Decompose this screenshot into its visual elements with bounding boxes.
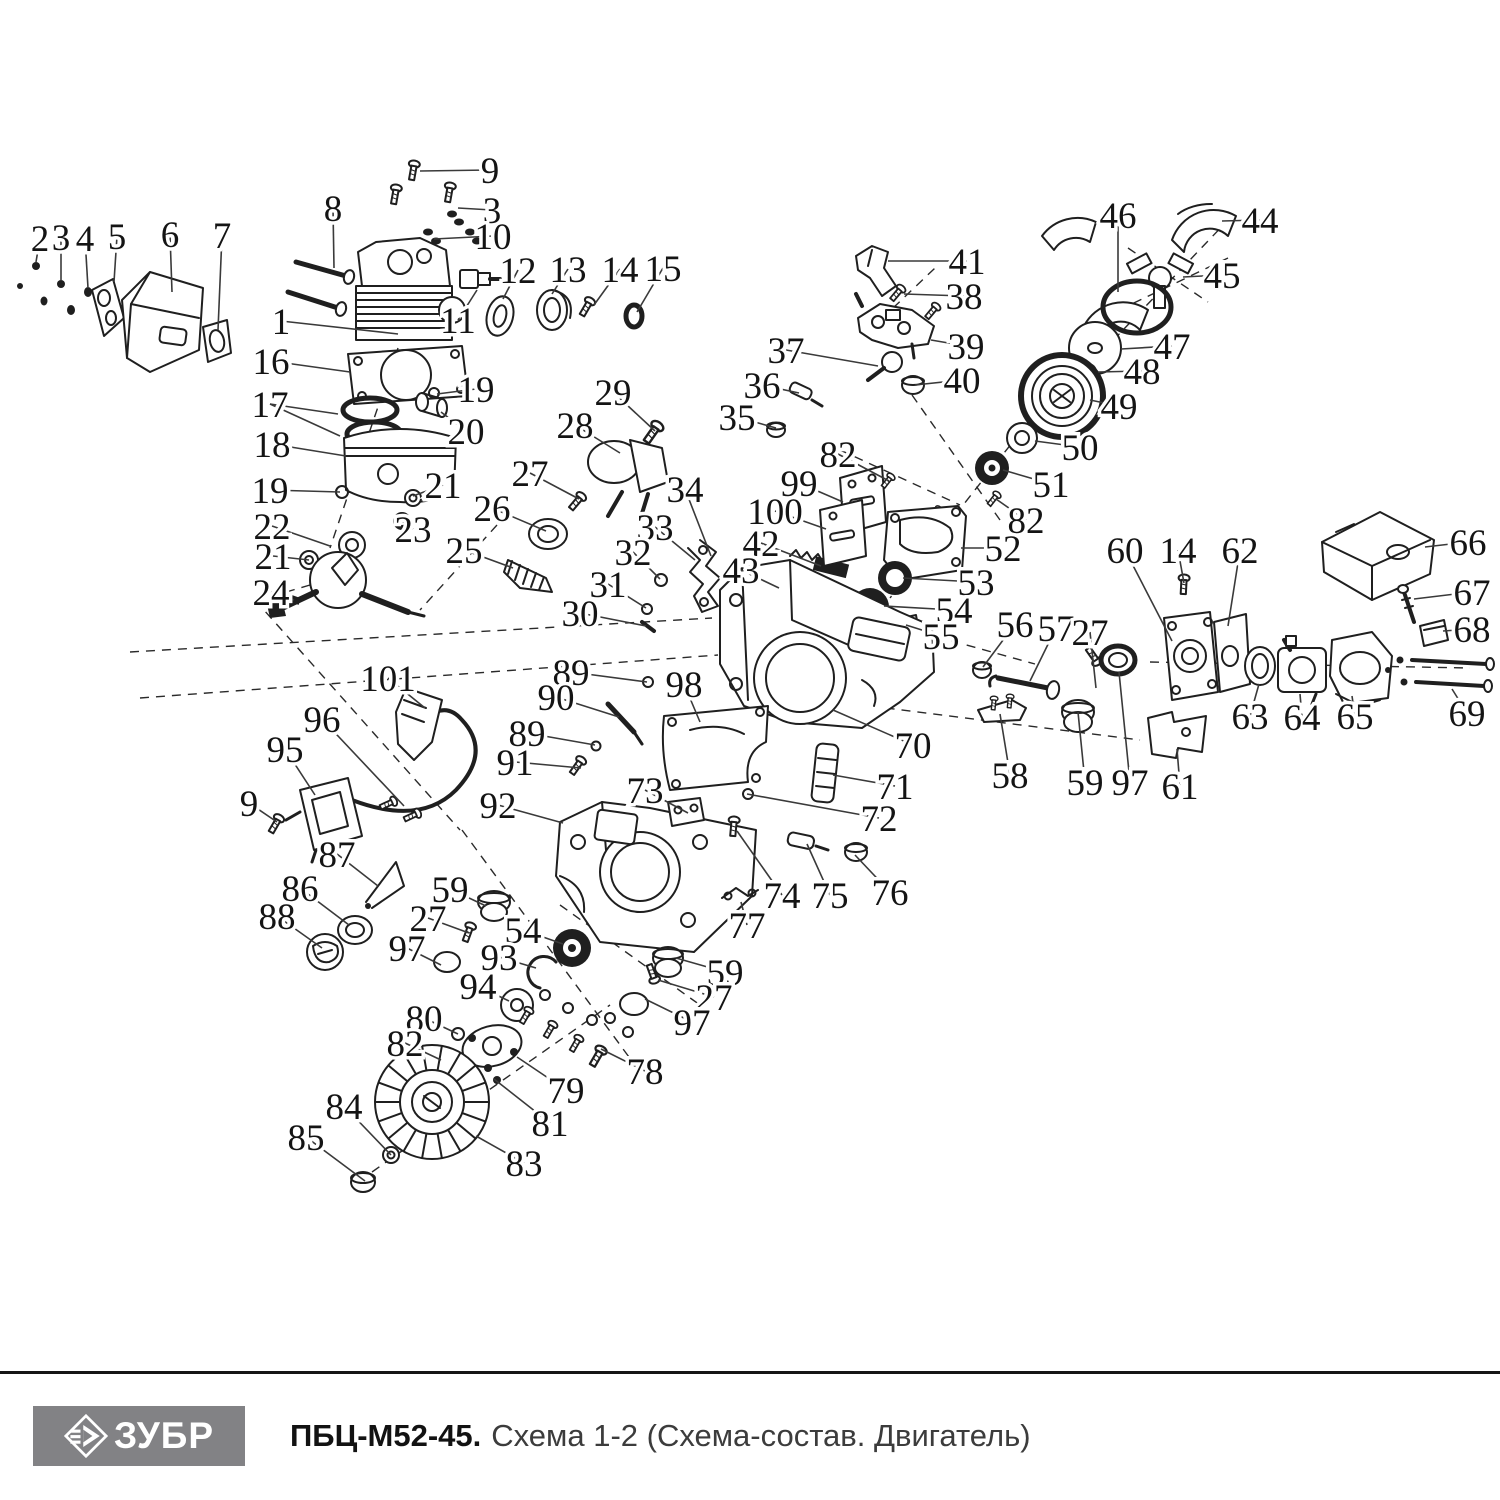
part-callout-14: 14 bbox=[602, 250, 639, 291]
part-callout-44: 44 bbox=[1242, 201, 1279, 242]
part-callout-62: 62 bbox=[1222, 531, 1259, 572]
cap-part-88 bbox=[307, 934, 343, 970]
screw-part-81a bbox=[484, 1064, 492, 1072]
part-callout-70: 70 bbox=[895, 726, 932, 767]
part-callout-91: 91 bbox=[497, 743, 534, 784]
oiler-screw-part-37 bbox=[868, 352, 902, 380]
cap-part-76 bbox=[845, 843, 867, 861]
bearing-part-51 bbox=[975, 451, 1009, 485]
model-code: ПБЦ-М52-45. bbox=[290, 1418, 481, 1454]
bolt-part-91 bbox=[567, 754, 587, 776]
part-callout-57: 57 bbox=[1038, 609, 1075, 650]
part-callout-101: 101 bbox=[360, 659, 416, 700]
part-callout-40: 40 bbox=[944, 361, 981, 402]
guide-plate-part-100 bbox=[820, 500, 866, 566]
manifold-part-65 bbox=[1330, 632, 1392, 706]
spark-plug-part-11 bbox=[460, 270, 500, 288]
part-callout-20: 20 bbox=[448, 412, 485, 453]
pin-part-30 bbox=[642, 622, 654, 631]
part-callout-34: 34 bbox=[667, 470, 704, 511]
part-callout-73: 73 bbox=[627, 771, 664, 812]
spark-wire-part-101 bbox=[352, 688, 476, 811]
part-callout-46: 46 bbox=[1100, 196, 1137, 237]
gasket-part-12 bbox=[483, 293, 518, 338]
part-callout-49: 49 bbox=[1101, 387, 1138, 428]
part-callout-90: 90 bbox=[538, 678, 575, 719]
part-callout-19: 19 bbox=[458, 370, 495, 411]
part-callout-13: 13 bbox=[550, 250, 587, 291]
part-callout-9: 9 bbox=[481, 151, 500, 192]
part-callout-67: 67 bbox=[1454, 573, 1491, 614]
bar-bolt-part-57 bbox=[990, 676, 1061, 700]
clutch-shoe-part-44b bbox=[1042, 218, 1096, 250]
exploded-parts-diagram: 2345678931012131415111161917201819212223… bbox=[0, 0, 1500, 1500]
part-callout-23: 23 bbox=[395, 510, 432, 551]
part-callout-55: 55 bbox=[923, 617, 960, 658]
part-callout-26: 26 bbox=[474, 489, 511, 530]
part-callout-82: 82 bbox=[387, 1024, 424, 1065]
footer: ЗУБР ПБЦ-М52-45. Схема 1-2 (Схема-состав… bbox=[0, 1400, 1500, 1480]
engine-mount-part-60 bbox=[1164, 612, 1218, 700]
part-callout-5: 5 bbox=[108, 217, 127, 258]
part-callout-56: 56 bbox=[997, 605, 1034, 646]
gasket-part-5 bbox=[92, 279, 124, 336]
screw-part-14 bbox=[577, 295, 596, 317]
part-callout-81: 81 bbox=[532, 1104, 569, 1145]
part-callout-76: 76 bbox=[872, 873, 909, 914]
washer-part-50 bbox=[1007, 423, 1037, 453]
handle-part-41 bbox=[856, 246, 896, 296]
part-callout-18: 18 bbox=[254, 425, 291, 466]
brand-logo: ЗУБР bbox=[33, 1406, 245, 1466]
part-callout-14: 14 bbox=[1160, 531, 1197, 572]
part-callout-97: 97 bbox=[674, 1003, 711, 1044]
part-callout-97: 97 bbox=[1112, 763, 1149, 804]
crankcase-gasket-part-98 bbox=[663, 706, 768, 790]
tensioner-blade-part-34-33 bbox=[688, 540, 720, 612]
muffler-cluster bbox=[17, 262, 231, 372]
part-callout-29: 29 bbox=[595, 373, 632, 414]
part-callout-27: 27 bbox=[512, 454, 549, 495]
part-callout-77: 77 bbox=[729, 906, 766, 947]
part-callout-51: 51 bbox=[1033, 465, 1070, 506]
footer-divider-line bbox=[0, 1371, 1500, 1374]
part-callout-92: 92 bbox=[480, 786, 517, 827]
part-callout-85: 85 bbox=[288, 1118, 325, 1159]
washer-part-10 bbox=[465, 229, 475, 236]
part-callout-17: 17 bbox=[252, 385, 289, 426]
pin-part-90 bbox=[608, 704, 642, 744]
bolt-part-29 bbox=[641, 419, 665, 446]
screw-part-3b bbox=[442, 182, 456, 203]
part-callout-25: 25 bbox=[446, 531, 483, 572]
part-callout-43: 43 bbox=[723, 551, 760, 592]
part-callout-21: 21 bbox=[255, 537, 292, 578]
crankcase-cover-part-92 bbox=[556, 802, 756, 952]
part-callout-82: 82 bbox=[820, 435, 857, 476]
gasket-part-62 bbox=[1214, 614, 1250, 692]
oil-pump-part-75 bbox=[787, 832, 828, 850]
part-callout-61: 61 bbox=[1162, 767, 1199, 808]
pin-part-3 bbox=[57, 280, 65, 288]
part-callout-38: 38 bbox=[946, 277, 983, 318]
part-callout-24: 24 bbox=[253, 573, 290, 614]
bearing-part-54b bbox=[553, 929, 591, 967]
part-callout-83: 83 bbox=[506, 1144, 543, 1185]
part-callout-50: 50 bbox=[1062, 428, 1099, 469]
ring-part-97e bbox=[620, 993, 648, 1015]
worm-gear-part-25 bbox=[504, 560, 552, 592]
part-callout-69: 69 bbox=[1449, 694, 1486, 735]
part-callout-74: 74 bbox=[764, 876, 801, 917]
part-callout-15: 15 bbox=[645, 249, 682, 290]
part-callout-9: 9 bbox=[240, 784, 259, 825]
part-callout-88: 88 bbox=[259, 897, 296, 938]
part-callout-84: 84 bbox=[326, 1087, 363, 1128]
part-callout-2: 2 bbox=[31, 219, 50, 260]
buffer-part-59e bbox=[653, 947, 683, 977]
screw-part-82b bbox=[986, 490, 1003, 508]
washer-part-4 bbox=[84, 287, 92, 297]
part-callout-98: 98 bbox=[666, 665, 703, 706]
bolts-part-69 bbox=[1385, 657, 1494, 693]
gasket-part-7 bbox=[203, 320, 231, 362]
part-callout-58: 58 bbox=[992, 756, 1029, 797]
screw-part-9 bbox=[406, 160, 420, 181]
clutch-drum-part-49 bbox=[1021, 355, 1103, 437]
bracket-assembly-part-39 bbox=[856, 294, 934, 358]
part-callout-11: 11 bbox=[440, 301, 476, 342]
chain-catcher-part-71 bbox=[811, 743, 839, 803]
air-filter-part-66 bbox=[1322, 512, 1434, 600]
part-callout-96: 96 bbox=[304, 700, 341, 741]
part-callout-66: 66 bbox=[1450, 523, 1487, 564]
part-callout-87: 87 bbox=[319, 835, 356, 876]
wire-clip-part-87 bbox=[365, 862, 404, 909]
clutch-cluster bbox=[975, 204, 1236, 485]
nut-part-35 bbox=[767, 423, 785, 438]
part-callout-59: 59 bbox=[1067, 763, 1104, 804]
part-callout-35: 35 bbox=[719, 398, 756, 439]
zubr-diamond-icon bbox=[64, 1414, 108, 1458]
bracket-part-58 bbox=[978, 694, 1026, 722]
part-callout-68: 68 bbox=[1454, 610, 1491, 651]
nut-part-56 bbox=[973, 662, 991, 678]
part-callout-16: 16 bbox=[253, 342, 290, 383]
valve-part-36 bbox=[788, 381, 822, 406]
part-callout-94: 94 bbox=[460, 967, 497, 1008]
part-callout-28: 28 bbox=[557, 406, 594, 447]
bolt-part-67 bbox=[1398, 585, 1414, 622]
screw-part-14b bbox=[1178, 574, 1190, 594]
part-callout-45: 45 bbox=[1204, 256, 1241, 297]
part-callout-78: 78 bbox=[627, 1052, 664, 1093]
snap-ring-part-93 bbox=[528, 956, 556, 988]
washer-part-21a bbox=[405, 490, 421, 506]
part-callout-60: 60 bbox=[1107, 531, 1144, 572]
part-callout-65: 65 bbox=[1337, 697, 1374, 738]
part-callout-30: 30 bbox=[562, 594, 599, 635]
part-callout-72: 72 bbox=[861, 799, 898, 840]
leader-line-9 bbox=[420, 170, 490, 171]
part-callout-75: 75 bbox=[812, 876, 849, 917]
part-callout-97: 97 bbox=[389, 929, 426, 970]
part-callout-95: 95 bbox=[267, 730, 304, 771]
part-callout-12: 12 bbox=[500, 251, 537, 292]
intake-elbow-part-13 bbox=[537, 290, 571, 330]
ring-part-97d bbox=[434, 952, 460, 972]
choke-knob-part-68 bbox=[1420, 620, 1448, 646]
washer-part-89b bbox=[592, 742, 601, 751]
parts-diagram-page: 2345678931012131415111161917201819212223… bbox=[0, 0, 1500, 1500]
part-callout-8: 8 bbox=[324, 189, 343, 230]
screw-part-2 bbox=[32, 262, 40, 270]
cylinder-gasket-part-16 bbox=[348, 346, 468, 404]
seal-part-26 bbox=[529, 519, 567, 549]
part-callout-63: 63 bbox=[1232, 697, 1269, 738]
document-title: ПБЦ-М52-45. Схема 1-2 (Схема-состав. Дви… bbox=[290, 1406, 1031, 1466]
intake-seal-part-63 bbox=[1245, 647, 1275, 685]
nut-part-85 bbox=[351, 1172, 375, 1192]
brand-name: ЗУБР bbox=[114, 1415, 214, 1457]
part-callout-21: 21 bbox=[425, 466, 462, 507]
muffler-part-6 bbox=[122, 272, 203, 372]
part-callout-7: 7 bbox=[213, 216, 232, 257]
part-callout-3: 3 bbox=[52, 218, 71, 259]
part-callout-19: 19 bbox=[252, 471, 289, 512]
part-callout-4: 4 bbox=[76, 219, 95, 260]
schema-subtitle: Схема 1-2 (Схема-состав. Двигатель) bbox=[491, 1418, 1030, 1454]
carburetor-part-64 bbox=[1278, 636, 1326, 704]
part-callout-1: 1 bbox=[272, 302, 291, 343]
part-callout-64: 64 bbox=[1284, 698, 1321, 739]
part-callout-27: 27 bbox=[1072, 613, 1109, 654]
part-callout-6: 6 bbox=[161, 215, 180, 256]
bolt-part-8 bbox=[288, 262, 356, 317]
